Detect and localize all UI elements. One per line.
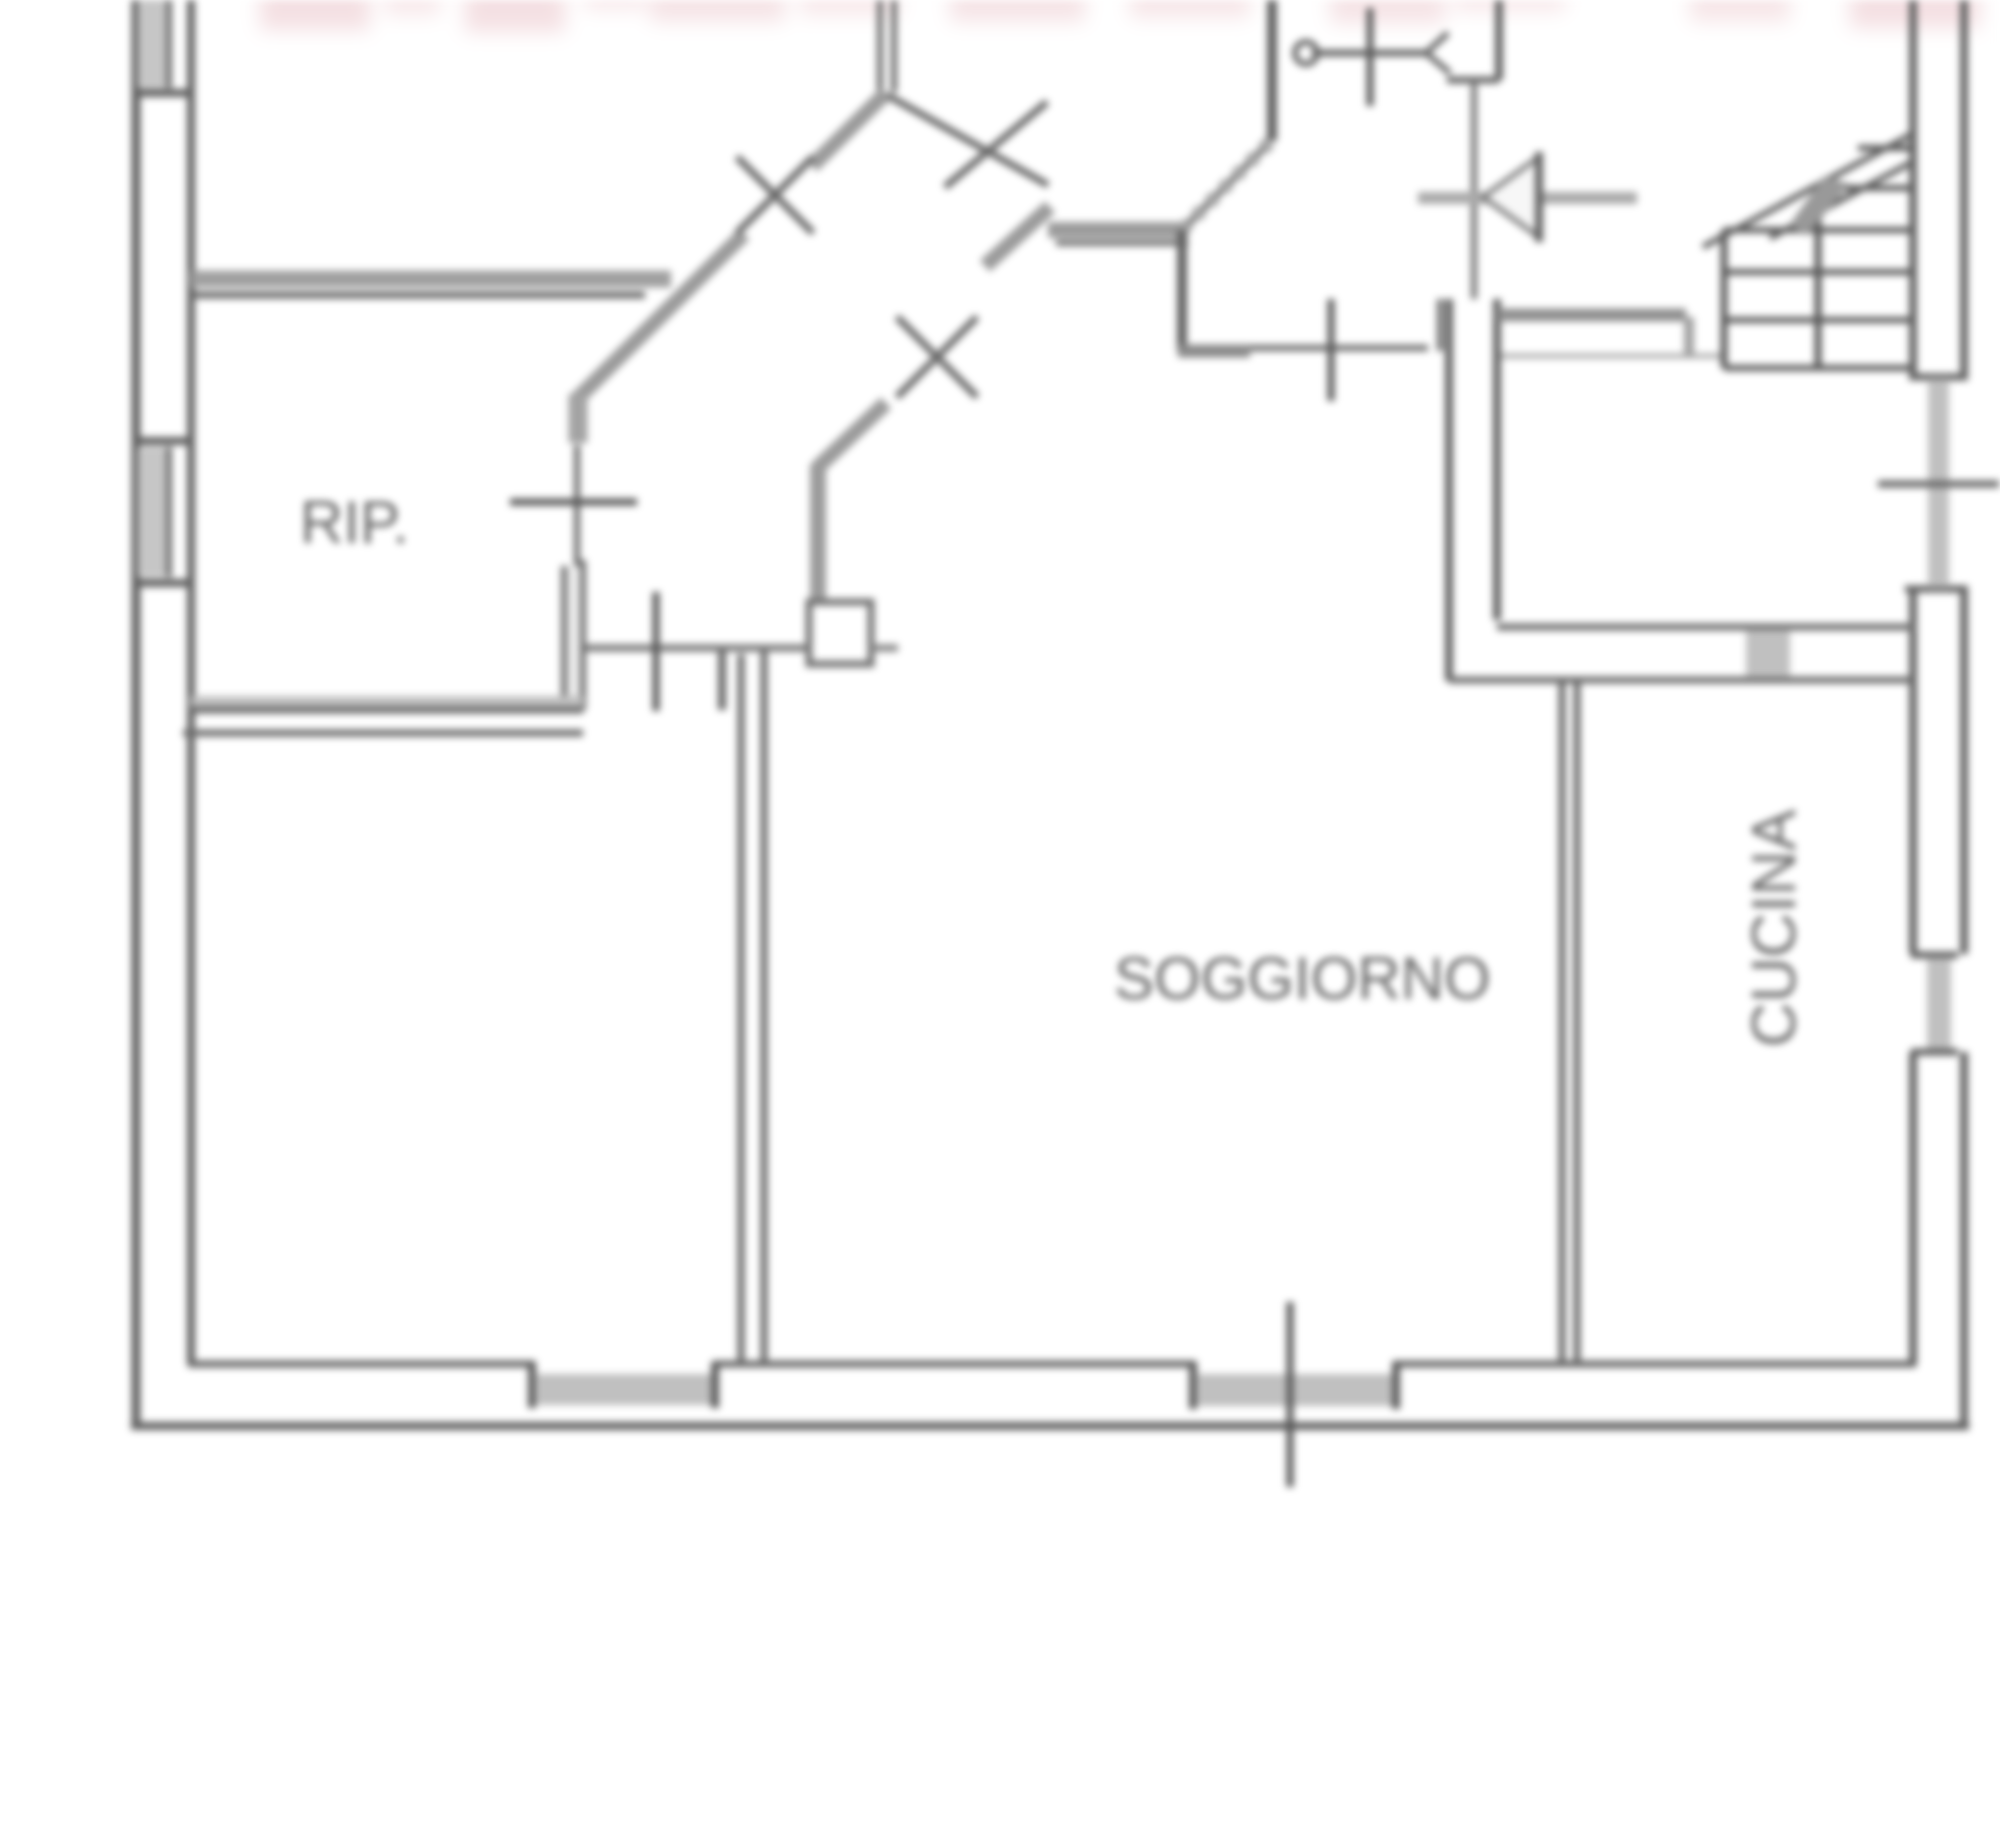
svg-text:RIP.: RIP.	[300, 489, 409, 556]
svg-text:CUCINA: CUCINA	[1740, 809, 1809, 1047]
svg-text:SOGGIORNO: SOGGIORNO	[1114, 945, 1491, 1012]
